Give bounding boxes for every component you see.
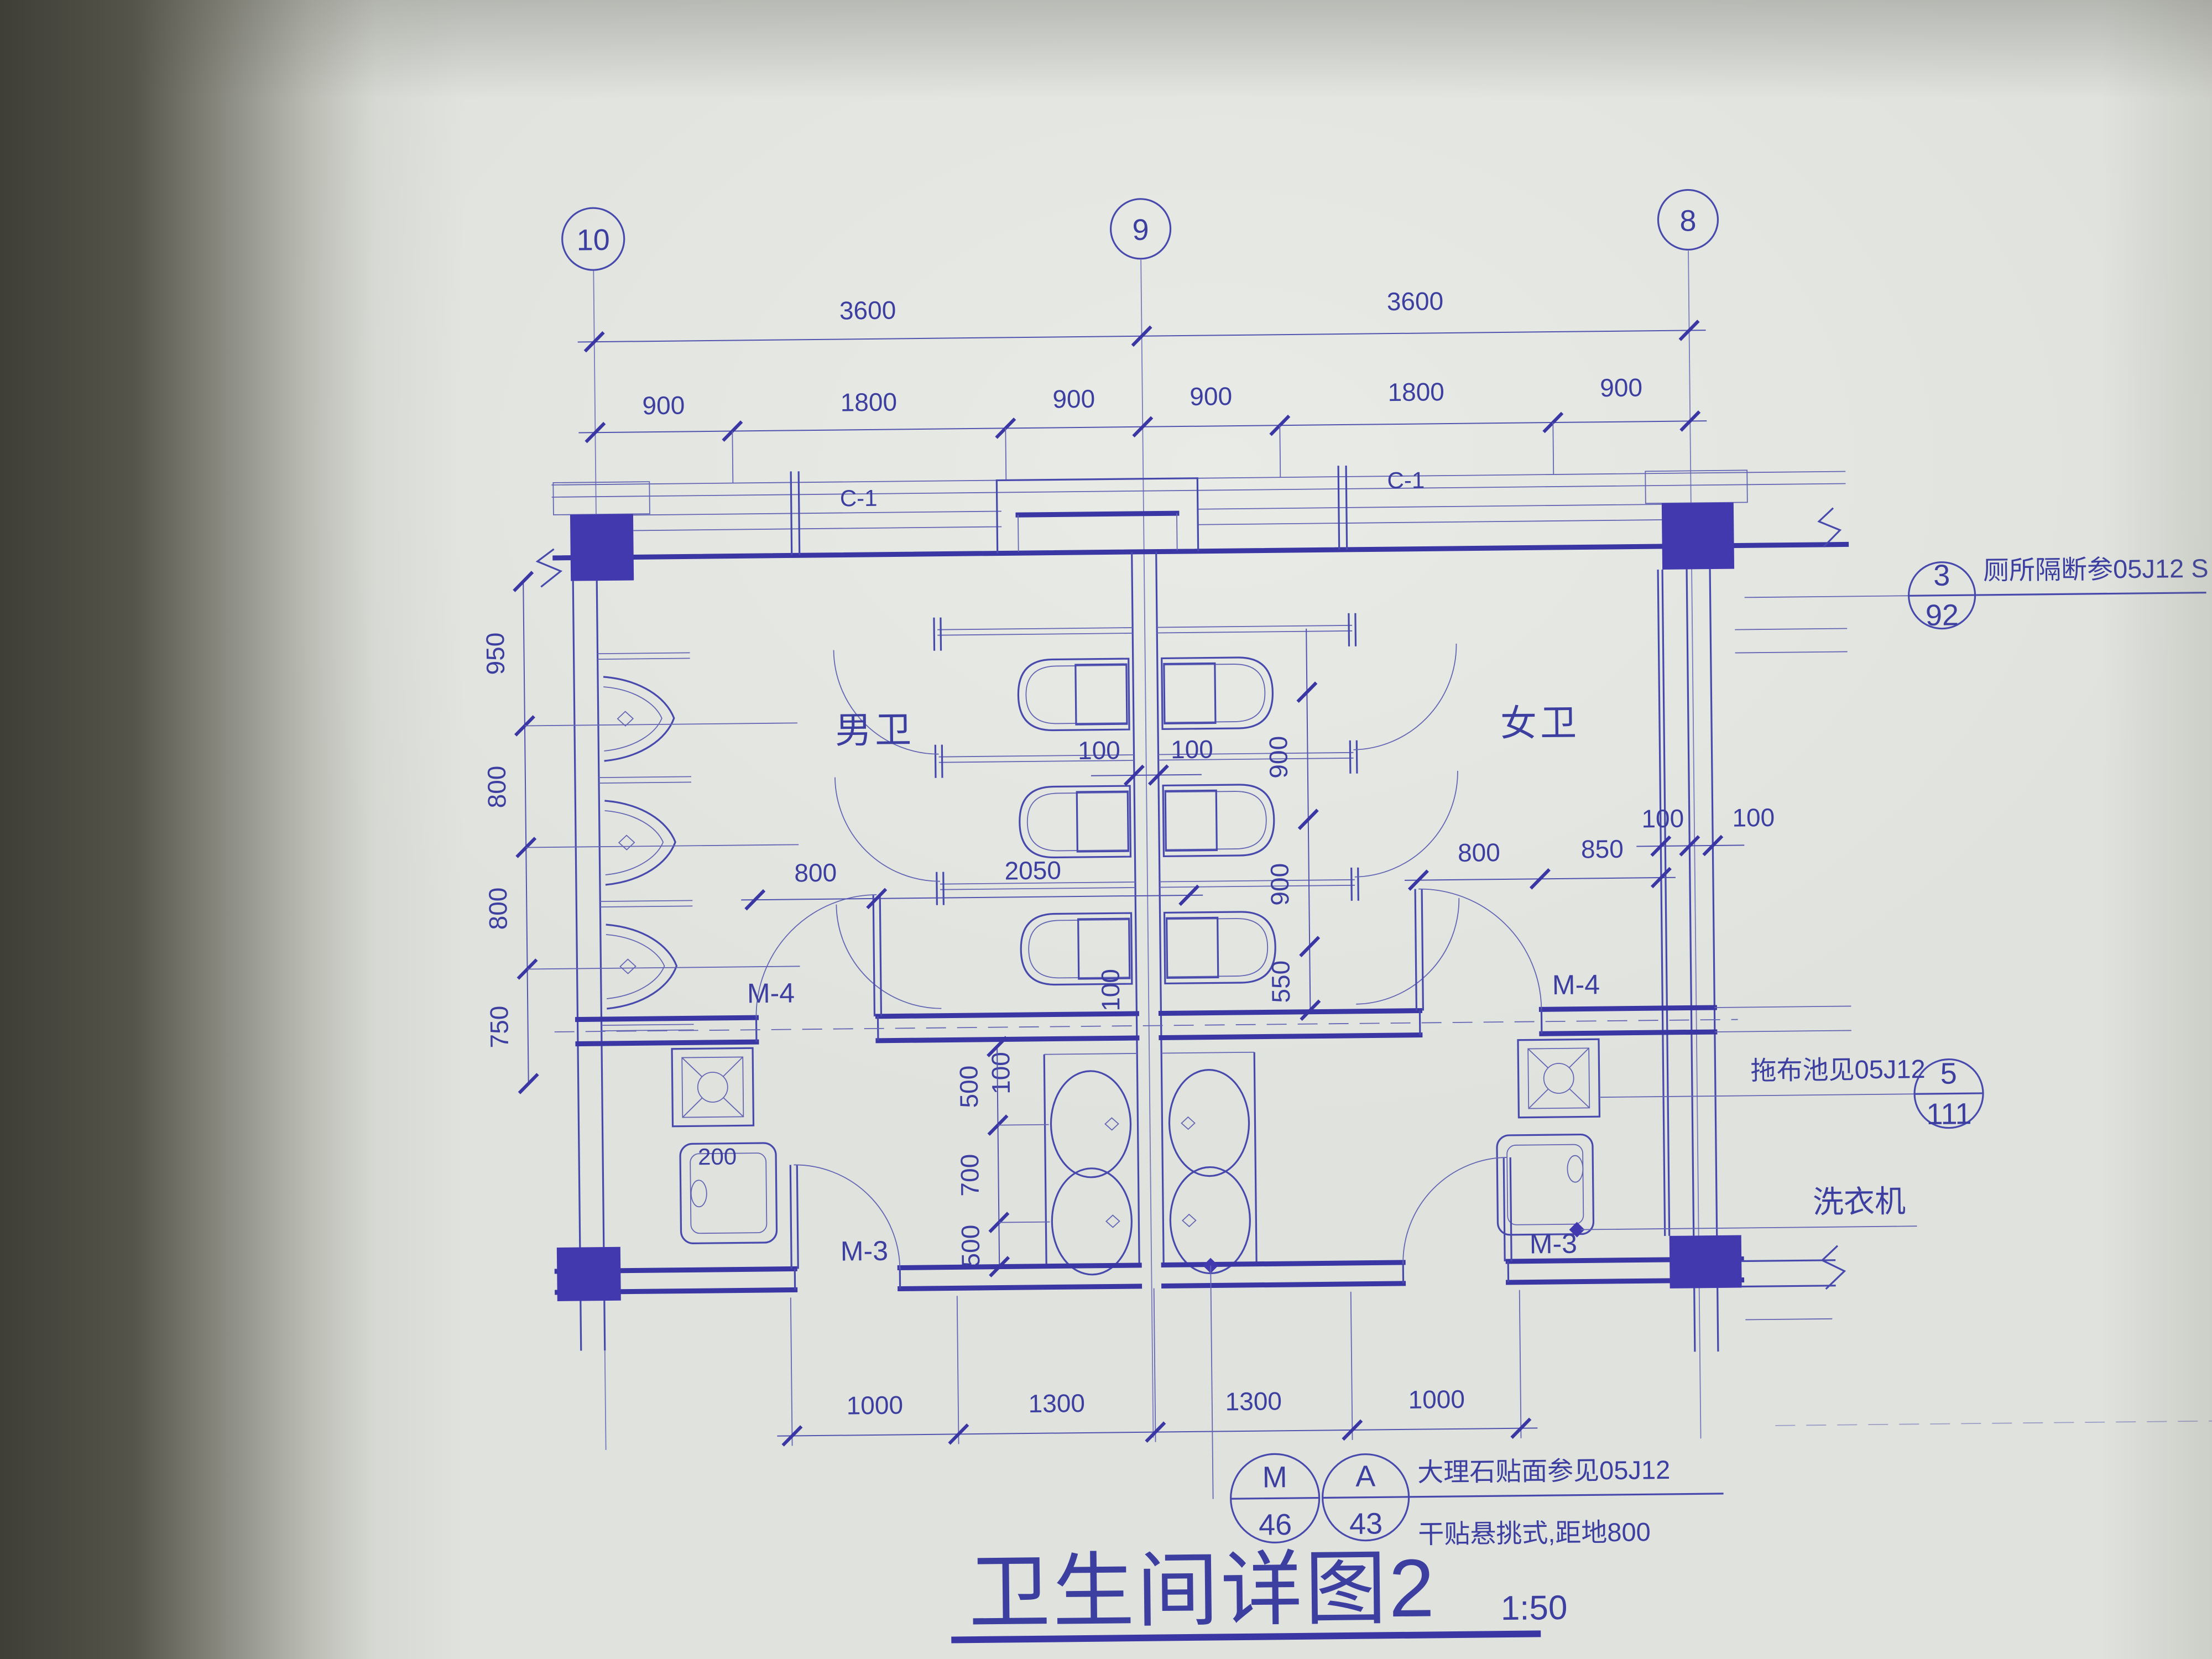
photo-shadow-left <box>0 0 2212 1659</box>
photographed-blueprint-page: 10 9 8 3600 3600 <box>0 0 2212 1659</box>
